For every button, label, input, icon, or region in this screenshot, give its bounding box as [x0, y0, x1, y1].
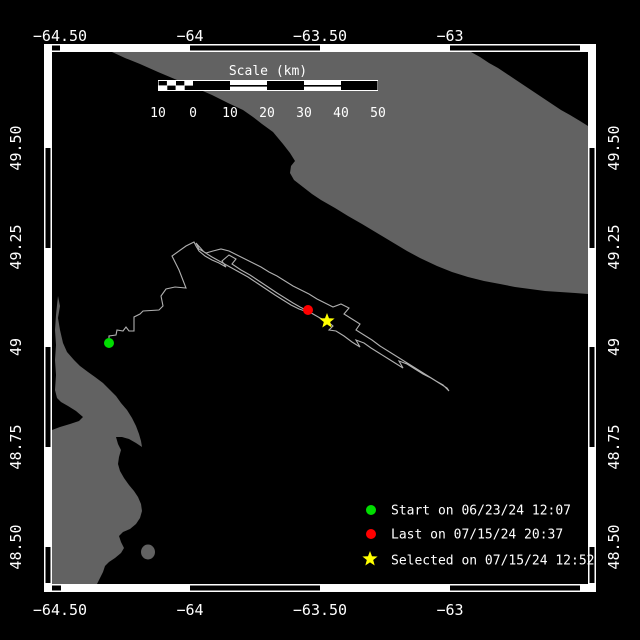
lat-label-right-5: 48.50 — [605, 524, 623, 569]
lat-label-left-3: 49 — [7, 338, 25, 356]
legend-last-label: Last on 07/15/24 20:37 — [391, 528, 563, 543]
lat-label-right-3: 49 — [605, 338, 623, 356]
lon-label-bottom-4: −63 — [436, 601, 463, 619]
lat-label-right-2: 49.25 — [605, 224, 623, 269]
lon-label-bottom-2: −64 — [176, 601, 203, 619]
legend: Start on 06/23/24 12:07 Last on 07/15/24… — [362, 504, 594, 569]
lon-label-top-3: −63.50 — [293, 27, 347, 45]
scalebar-tick-5: 30 — [296, 106, 312, 121]
lon-label-bottom-3: −63.50 — [293, 601, 347, 619]
lon-label-top-1: −64.50 — [33, 27, 87, 45]
scalebar-tick-2: 0 — [189, 106, 197, 121]
lat-label-left-5: 48.50 — [7, 524, 25, 569]
scalebar-tick-4: 20 — [259, 106, 275, 121]
legend-start-label: Start on 06/23/24 12:07 — [391, 504, 571, 519]
legend-selected-label: Selected on 07/15/24 12:52 — [391, 554, 595, 569]
scalebar-tick-7: 50 — [370, 106, 386, 121]
lat-label-right-4: 48.75 — [605, 424, 623, 469]
lat-label-left-4: 48.75 — [7, 424, 25, 469]
scalebar-tick-3: 10 — [222, 106, 238, 121]
scalebar-title: Scale (km) — [229, 64, 307, 79]
lat-label-right-1: 49.50 — [605, 125, 623, 170]
map-canvas[interactable]: −64.50 −64 −63.50 −63 −64.50 −64 −63.50 … — [0, 0, 640, 640]
last-marker[interactable] — [303, 305, 313, 315]
scalebar-tick-6: 40 — [333, 106, 349, 121]
lon-label-top-4: −63 — [436, 27, 463, 45]
lat-label-left-2: 49.25 — [7, 224, 25, 269]
small-island — [141, 545, 155, 560]
scalebar-tick-1: 10 — [150, 106, 166, 121]
legend-start-dot — [366, 505, 376, 515]
lon-label-bottom-1: −64.50 — [33, 601, 87, 619]
lat-label-left-1: 49.50 — [7, 125, 25, 170]
legend-last-dot — [366, 529, 376, 539]
start-marker[interactable] — [104, 338, 114, 348]
lon-label-top-2: −64 — [176, 27, 203, 45]
